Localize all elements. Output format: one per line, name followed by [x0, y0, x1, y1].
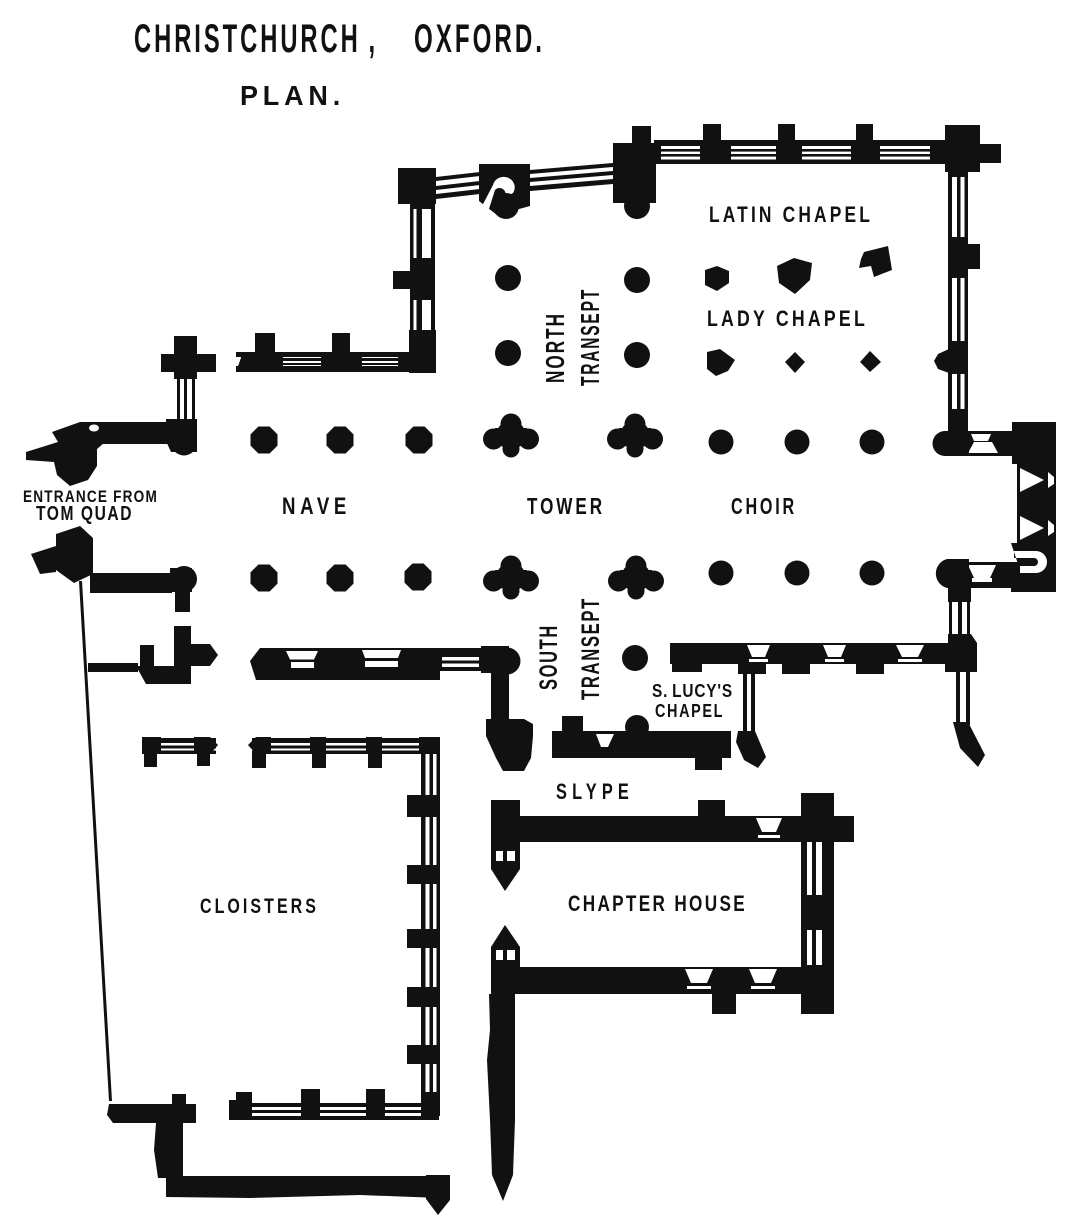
svg-text:S. LUCY'S: S. LUCY'S	[652, 681, 733, 701]
svg-text:CLOISTERS: CLOISTERS	[200, 895, 319, 918]
svg-text:CHRISTCHURCH ,: CHRISTCHURCH ,	[134, 17, 378, 61]
svg-text:TRANSEPT: TRANSEPT	[575, 288, 605, 386]
svg-text:TRANSEPT: TRANSEPT	[577, 597, 605, 700]
svg-text:PLAN.: PLAN.	[240, 80, 345, 111]
svg-text:TOM QUAD: TOM QUAD	[36, 503, 133, 525]
svg-text:LADY CHAPEL: LADY CHAPEL	[707, 306, 868, 331]
svg-text:LATIN CHAPEL: LATIN CHAPEL	[709, 202, 873, 227]
svg-text:SOUTH: SOUTH	[535, 624, 563, 690]
svg-text:NORTH: NORTH	[540, 312, 570, 383]
svg-text:CHAPTER HOUSE: CHAPTER HOUSE	[568, 891, 747, 916]
svg-text:SLYPE: SLYPE	[556, 779, 634, 804]
svg-text:NAVE: NAVE	[282, 493, 351, 520]
svg-text:TOWER: TOWER	[527, 493, 605, 519]
svg-text:CHOIR: CHOIR	[731, 493, 797, 519]
svg-text:CHAPEL: CHAPEL	[655, 701, 724, 721]
svg-text:OXFORD.: OXFORD.	[414, 17, 545, 61]
